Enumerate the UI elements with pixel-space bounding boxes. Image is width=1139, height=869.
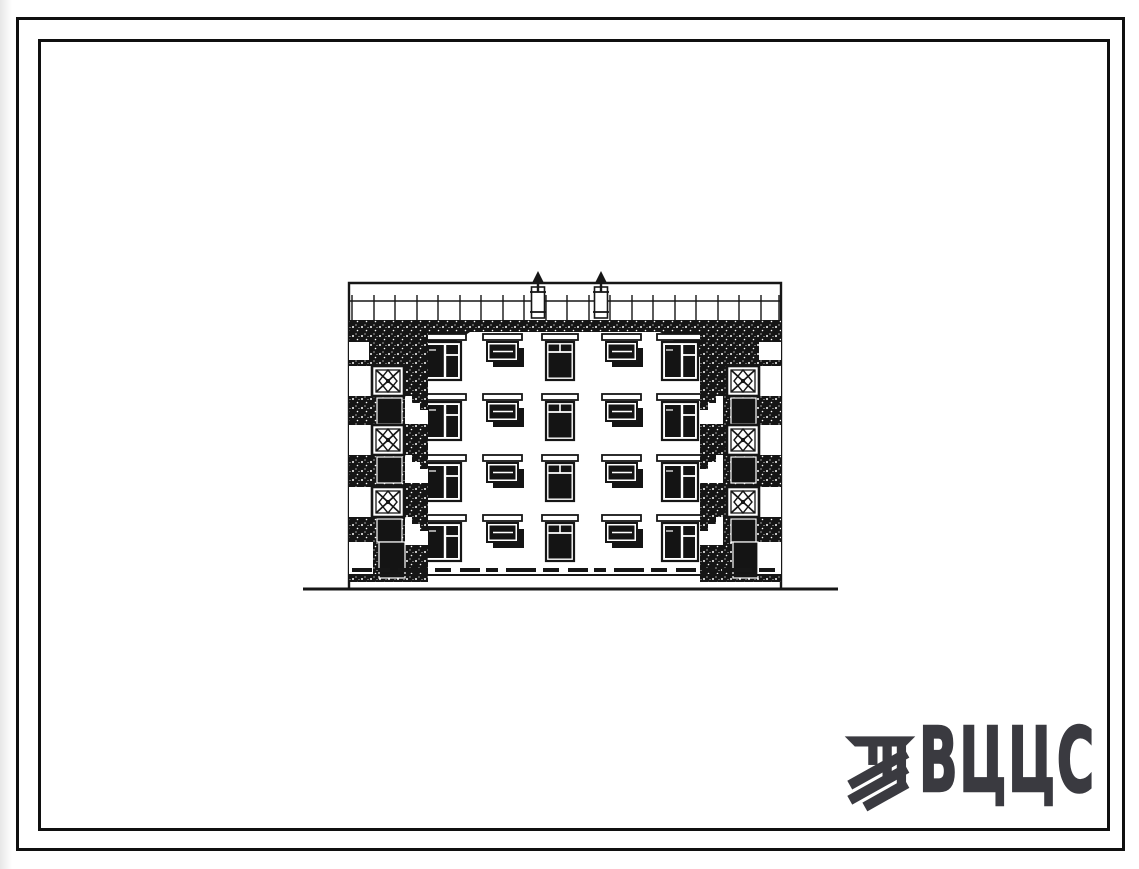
window-small	[602, 334, 643, 367]
balcony-lattice-panel	[727, 366, 759, 396]
window-small	[483, 394, 524, 427]
facade-windows	[420, 334, 703, 561]
building-elevation-drawing	[290, 258, 850, 598]
window-tall	[542, 394, 578, 440]
window-small	[602, 515, 643, 548]
window-small	[602, 455, 643, 488]
right-balcony-stack	[700, 332, 781, 582]
roof-parapet-railing	[349, 295, 781, 320]
left-balcony-stack	[349, 332, 428, 582]
roof-vent-left	[530, 271, 546, 318]
logo-text: ВЦЦС	[919, 708, 1096, 812]
window-small	[483, 334, 524, 367]
balcony-lattice-panel	[727, 487, 759, 517]
window-big	[657, 455, 703, 501]
window-tall	[542, 515, 578, 561]
roof-vent-right	[593, 271, 609, 318]
window-small	[483, 455, 524, 488]
window-big	[657, 334, 703, 380]
window-tall	[542, 455, 578, 501]
window-tall	[542, 334, 578, 380]
window-small	[483, 515, 524, 548]
window-big	[657, 394, 703, 440]
balcony-lattice-panel	[372, 366, 404, 396]
window-small	[602, 394, 643, 427]
window-big	[657, 515, 703, 561]
balcony-lattice-panel	[727, 425, 759, 455]
hatched-stripes-emblem-icon	[842, 728, 918, 812]
drawing-sheet: ВЦЦС	[0, 0, 1139, 869]
balcony-lattice-panel	[372, 487, 404, 517]
balcony-lattice-panel	[372, 425, 404, 455]
